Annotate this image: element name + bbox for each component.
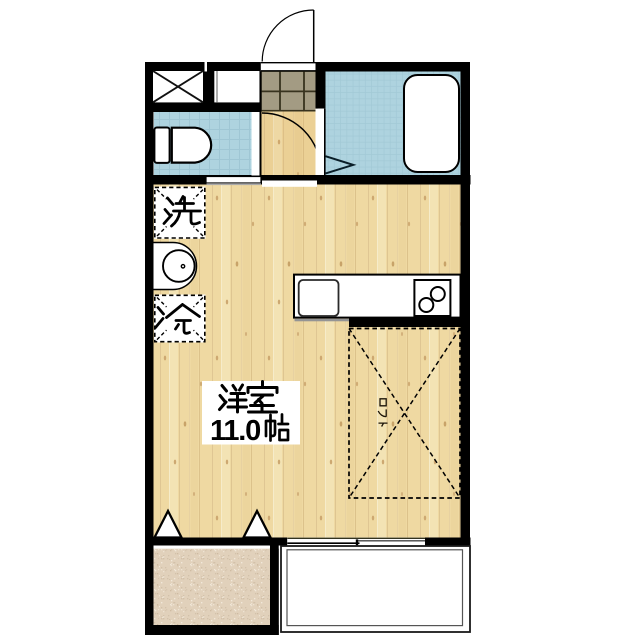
svg-text:11.0: 11.0 <box>210 415 260 447</box>
